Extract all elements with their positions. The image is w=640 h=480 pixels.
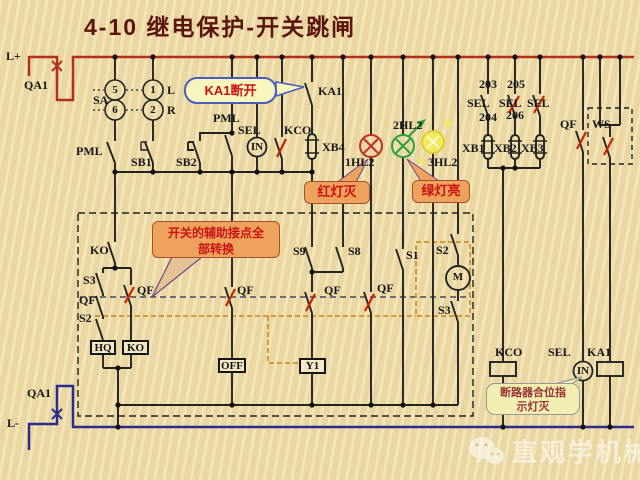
label-sa-5: 5 (105, 84, 125, 96)
label-sel-top: SEL (238, 124, 261, 136)
label-3hl2: 3HL2 (428, 156, 457, 168)
label-sb2: SB2 (176, 156, 197, 168)
watermark: 直观学机械 (468, 433, 640, 469)
ko-contact-blade (108, 242, 115, 263)
schematic-page: 4-10 继电保护-开关跳闸 L+ QA1 L- QA1 SA 5 1 6 2 … (0, 0, 640, 480)
off-box: OFF (218, 358, 246, 373)
page-title: 4-10 继电保护-开关跳闸 (84, 8, 356, 42)
label-in-top: IN (247, 141, 267, 153)
s2-right-contact-blade (451, 234, 458, 255)
s3-right-contact-blade (451, 301, 458, 322)
label-s3-left: S3 (83, 274, 96, 286)
callout-breaker-line2: 示灯灭 (487, 400, 579, 414)
label-kco-bottom: KCO (495, 346, 522, 358)
callout-breaker-line1: 断路器合位指 (487, 386, 579, 400)
aux-callout-pointer (152, 257, 202, 297)
ka1-callout-arrow (276, 82, 304, 96)
label-qa1-top: QA1 (24, 79, 48, 91)
label-qa1-bottom: QA1 (27, 387, 51, 399)
label-ka1-contact: KA1 (318, 85, 342, 97)
label-pml-mid: PML (213, 112, 240, 124)
label-205: 205 (507, 78, 525, 90)
ka1-contact-blade (305, 83, 312, 105)
callout-aux-line1: 开关的辅助接点全 (153, 225, 279, 241)
s8-contact-blade (336, 247, 343, 268)
label-sel-bottom: SEL (548, 346, 571, 358)
label-qf-off: QF (237, 284, 254, 296)
label-left-position: L (167, 84, 175, 96)
label-pml-left: PML (76, 145, 103, 157)
hq-coil-box: HQ (90, 340, 116, 355)
lamp-glow-sparkle-2 (418, 158, 424, 164)
callout-red-light-off: 红灯灭 (304, 181, 370, 204)
label-ko-contact: KO (90, 244, 109, 256)
label-206: 206 (506, 109, 524, 121)
label-qf-branch: QF (137, 284, 154, 296)
callout-green-light-on: 绿灯亮 (412, 180, 470, 203)
pml2-contact-blade (225, 135, 232, 156)
label-right-position: R (167, 104, 176, 116)
label-2hl2: 2HL2 (393, 119, 422, 131)
label-qf-top: QF (560, 118, 577, 130)
label-qf-y1: QF (324, 284, 341, 296)
ka1-coil (597, 362, 623, 376)
y1-trip-coil-box: Y1 (299, 358, 326, 374)
label-203: 203 (479, 78, 497, 90)
label-s9: S9 (293, 245, 306, 257)
kco-coil (490, 362, 516, 376)
label-1hl2: 1HL2 (345, 156, 374, 168)
label-qf-left: QF (79, 294, 96, 306)
watermark-text: 直观学机械 (512, 433, 640, 469)
qf-left-contact-blade (96, 296, 103, 317)
label-qf-1hl2: QF (377, 282, 394, 294)
label-l-minus: L- (7, 417, 19, 429)
label-sel-c: SEL (527, 97, 550, 109)
lamp-1hl2-red (360, 135, 382, 157)
label-sa-6: 6 (105, 104, 125, 116)
label-s3-right: S3 (438, 304, 451, 316)
label-s2-left: S2 (79, 312, 92, 324)
ko-coil-box: KO (122, 340, 149, 355)
col-ws-ka1 (600, 57, 620, 427)
label-sb1: SB1 (131, 156, 152, 168)
label-ws: WS (592, 118, 611, 130)
s3-contact-blade (96, 273, 103, 294)
label-ka1-bottom: KA1 (587, 346, 611, 358)
label-xb1: XB1 (462, 142, 485, 154)
label-s8: S8 (348, 245, 361, 257)
xb1-connector (484, 135, 492, 159)
label-xb2: XB2 (494, 142, 517, 154)
pml1-contact-blade (107, 142, 115, 163)
callout-aux-contacts: 开关的辅助接点全 部转换 (152, 221, 280, 258)
label-in-bottom: IN (573, 365, 593, 377)
label-l-plus: L+ (6, 50, 21, 62)
callout-aux-line2: 部转换 (153, 241, 279, 257)
wechat-icon (468, 435, 504, 467)
label-sa-1: 1 (143, 84, 163, 96)
col-s9-s8-y1 (312, 57, 343, 405)
label-xb3: XB3 (521, 142, 544, 154)
callout-ka1-open: KA1断开 (184, 77, 277, 104)
label-motor: M (448, 271, 468, 283)
label-sa-2: 2 (143, 104, 163, 116)
label-xb4: XB4 (322, 141, 345, 153)
callout-breaker-indicator: 断路器合位指 示灯灭 (486, 383, 580, 415)
label-s1: S1 (406, 249, 419, 261)
s1-contact-blade (396, 249, 403, 270)
s9-contact-blade (305, 247, 312, 268)
label-204: 204 (479, 111, 497, 123)
s2-contact-blade (96, 319, 103, 340)
lamp-glow-sparkle (445, 120, 452, 127)
xb4-connector (308, 134, 316, 159)
label-kco-top: KCO (284, 124, 311, 136)
label-s2-right: S2 (436, 244, 449, 256)
label-sel-a: SEL (467, 97, 490, 109)
